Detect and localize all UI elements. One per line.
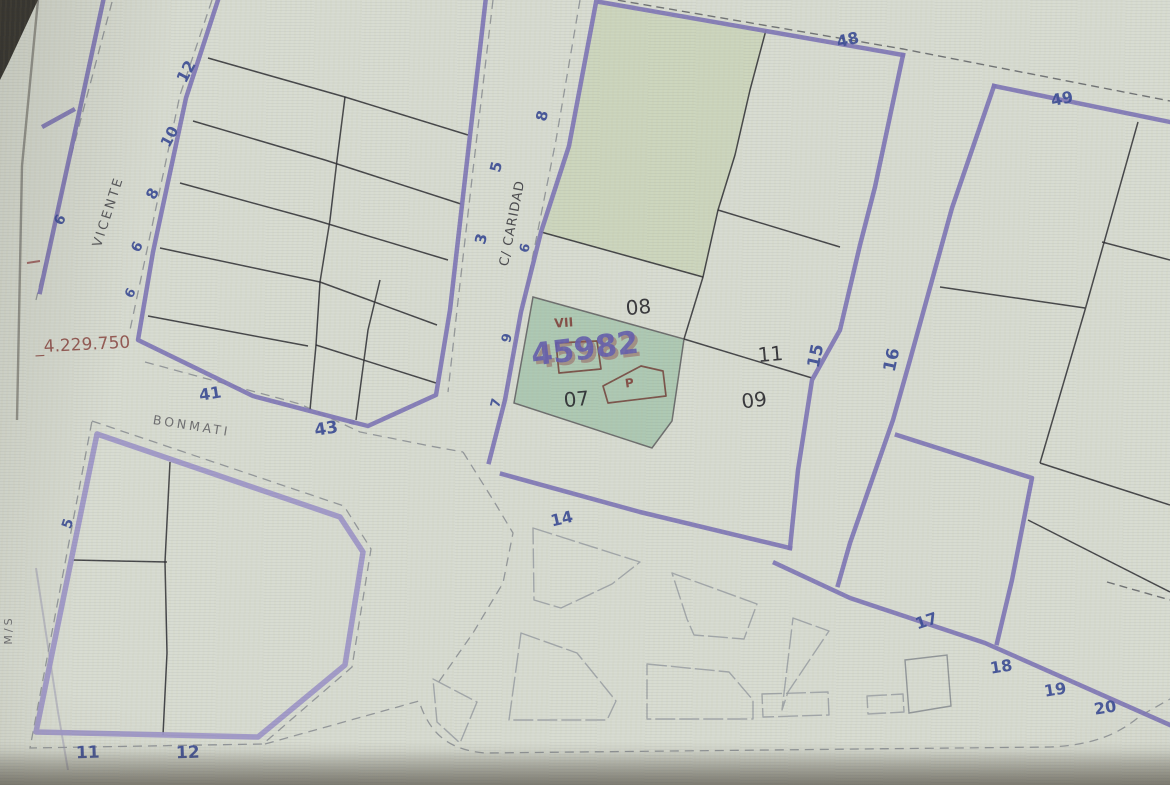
sidewalk-line [448,0,493,392]
parcel-line [356,280,380,420]
block-boundary-dashed [1107,582,1170,600]
house-number-6: 6 [128,239,147,255]
right-block-edge-west [838,86,994,585]
parcel-line [180,183,448,260]
sidewalk-line [438,452,513,683]
house-number-6: 6 [517,242,534,254]
sidewalk-line [145,362,463,452]
parcel-line [72,560,167,562]
parcel-line [208,58,468,135]
house-number-5: 5 [59,517,77,531]
traffic-island [647,664,753,719]
cadastral-map-photo: _4.229.750 VICENTE C/ CARIDAD BONMATI M/… [0,0,1170,785]
traffic-island [762,692,829,717]
parcel-number-08: 08 [625,294,652,320]
street-line-vicente-west [40,0,104,292]
traffic-island [782,618,829,710]
house-number-20: 20 [1093,696,1118,718]
house-number-8: 8 [532,109,552,123]
parcel-line [1040,463,1170,505]
right-block-edge-north [994,86,1170,122]
house-number-19: 19 [1043,678,1068,700]
right-block-inner-edge [897,435,1032,643]
house-number-43: 43 [313,417,340,440]
house-number-3: 3 [471,232,491,246]
parcel-line [718,210,840,247]
house-number-17: 17 [913,608,940,633]
parcel-number-07: 07 [563,386,590,412]
traffic-island [672,573,757,639]
house-number-18: 18 [989,655,1014,677]
block-edge-east [790,55,903,548]
house-number-5: 5 [486,160,506,174]
street-label-edge: M/S [2,615,15,644]
parcel-number-09: 09 [740,387,768,414]
parcel-line [160,248,437,325]
parcel-line [940,287,1085,308]
building-outline [905,655,951,713]
block-roman-label: VII [554,314,574,330]
coordinate-label: _4.229.750 [34,333,131,358]
parcel-line [1102,242,1170,260]
street-label-vicente: VICENTE [90,175,127,249]
traffic-island [433,679,477,743]
street-label-caridad: C/ CARIDAD [497,179,528,267]
parcel-line [316,345,436,383]
parcel-line [1040,122,1138,463]
parcel-region-upper[interactable] [541,3,766,277]
parcel-line [148,316,308,346]
survey-tick [27,261,40,263]
parcel-number-11: 11 [757,341,784,367]
map-canvas[interactable]: _4.229.750 VICENTE C/ CARIDAD BONMATI M/… [0,0,1170,785]
house-number-41: 41 [198,382,223,404]
street-label-bonmati: BONMATI [152,412,232,439]
block-edge-south [502,474,790,548]
house-number-14: 14 [549,507,575,531]
parcel-line [163,462,170,735]
street-line-vicente-east [138,0,352,422]
house-number-15: 15 [804,342,828,369]
street-tick [44,110,73,126]
bonmati-block-outline [36,434,363,737]
house-number-7: 7 [488,397,505,409]
parcel-line [310,97,345,410]
parcel-line [1028,520,1170,592]
house-number-16: 16 [880,346,904,373]
house-number-49: 49 [1049,87,1074,110]
house-number-8: 8 [142,185,163,203]
traffic-island [533,528,640,608]
traffic-island [509,633,616,720]
photo-bottom-shadow [0,742,1170,785]
parcel-line [684,339,812,378]
house-number-9: 9 [499,332,516,344]
traffic-island [867,694,904,714]
parcel-line [193,121,461,204]
